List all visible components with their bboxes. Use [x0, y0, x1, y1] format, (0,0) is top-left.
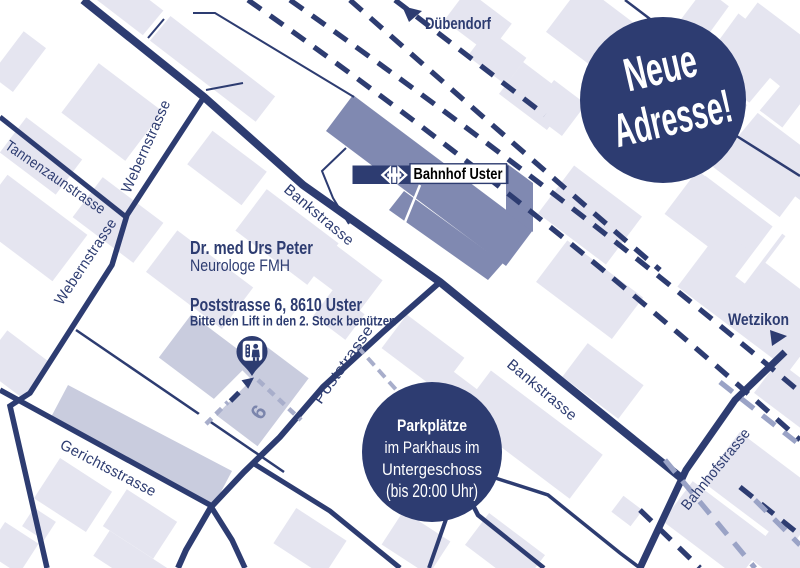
svg-text:Bitte den Lift in den 2. Stock: Bitte den Lift in den 2. Stock benützen	[190, 313, 396, 329]
svg-text:im Parkhaus im: im Parkhaus im	[385, 438, 480, 457]
svg-text:Wetzikon: Wetzikon	[728, 310, 789, 329]
svg-text:Dr. med Urs Peter: Dr. med Urs Peter	[190, 238, 313, 258]
svg-text:Neurologe FMH: Neurologe FMH	[190, 256, 290, 275]
svg-text:Untergeschoss: Untergeschoss	[382, 460, 482, 479]
svg-text:Bahnhof Uster: Bahnhof Uster	[414, 166, 503, 183]
svg-text:(bis 20:00 Uhr): (bis 20:00 Uhr)	[386, 481, 478, 501]
svg-text:Parkplätze: Parkplätze	[397, 416, 467, 435]
svg-text:Dübendorf: Dübendorf	[425, 14, 491, 33]
